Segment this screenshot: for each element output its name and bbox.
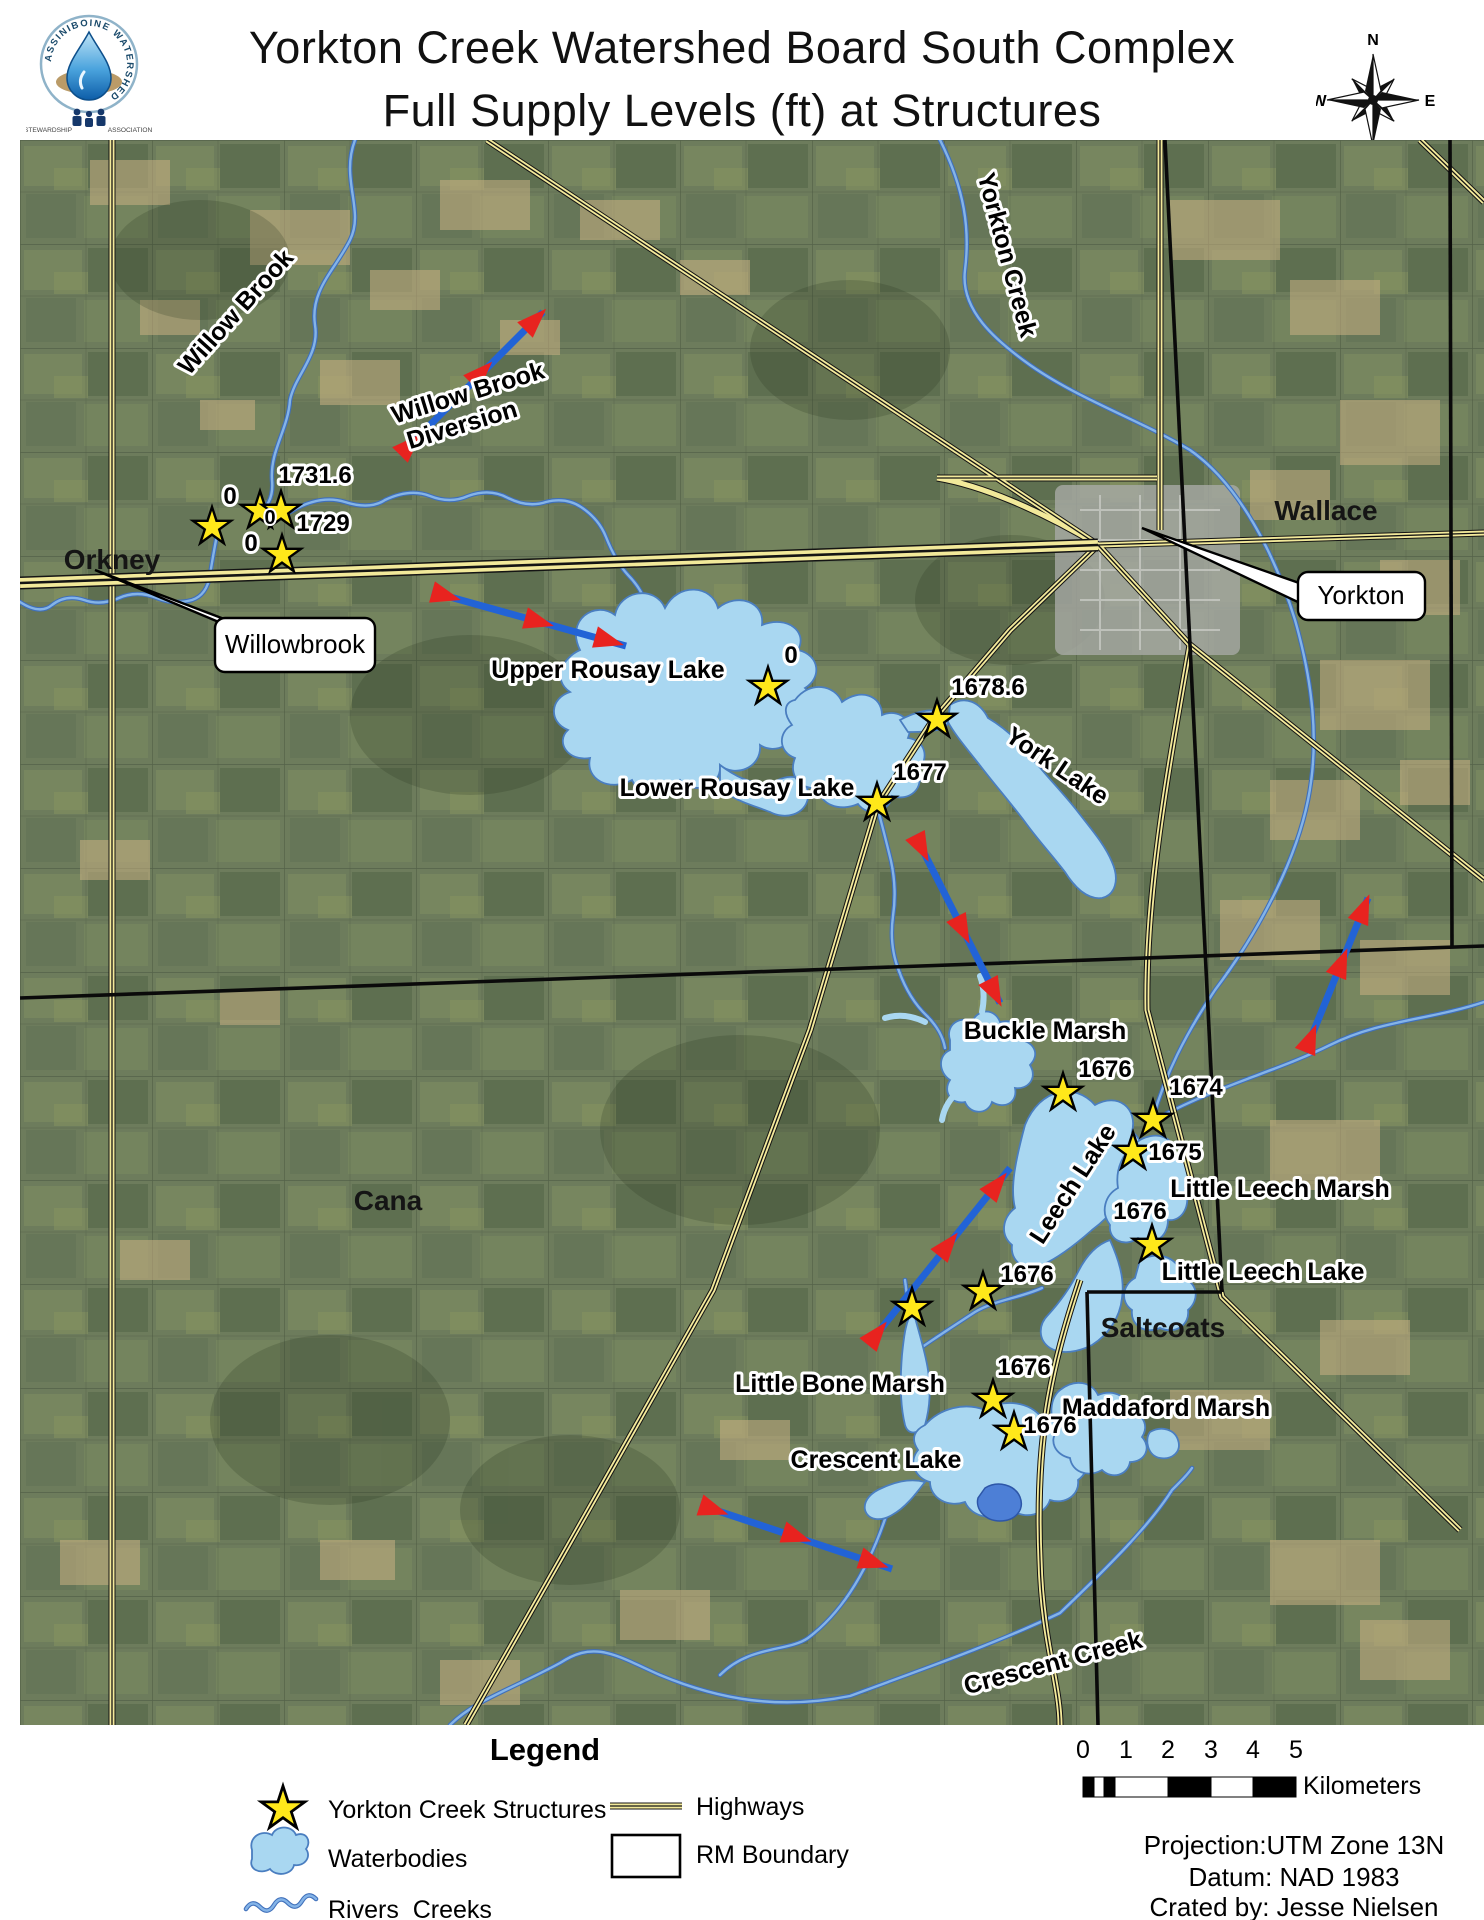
scale-tick: 1 xyxy=(1119,1736,1133,1764)
compass-n-label: N xyxy=(1367,32,1379,49)
organization-logo: ASSINIBOINE WATERSHED STEWARDSHIP ASSOCI… xyxy=(26,6,152,141)
legend-waterbody-icon xyxy=(251,1828,308,1874)
legend-item-highways: Highways xyxy=(696,1793,804,1821)
page-title-line1: Yorkton Creek Watershed Board South Comp… xyxy=(0,22,1484,74)
structure-value: 1676 xyxy=(997,1354,1050,1381)
label-maddaford-marsh: Maddaford Marsh xyxy=(1062,1394,1270,1422)
compass-w-label: W xyxy=(1316,93,1327,110)
scale-tick: 0 xyxy=(1076,1736,1090,1764)
scale-tick: 5 xyxy=(1289,1736,1303,1764)
label-wallace: Wallace xyxy=(1274,495,1377,526)
label-upper-rousay-lake: Upper Rousay Lake xyxy=(491,656,725,684)
scale-tick: 4 xyxy=(1246,1736,1260,1764)
logo-banner-right: ASSOCIATION xyxy=(108,127,152,134)
yorkton-city-area xyxy=(1055,485,1240,655)
structure-value: 0 xyxy=(244,530,257,557)
callout-willowbrook-label: Willowbrook xyxy=(225,629,366,659)
compass-rose: N E S W xyxy=(1316,12,1446,153)
structure-value: 1674 xyxy=(1169,1074,1223,1101)
structure-value: 1731.6 xyxy=(278,462,351,489)
label-little-leech-lake: Little Leech Lake xyxy=(1162,1258,1365,1286)
scale-bar: 0 1 2 3 4 5 Kilometers xyxy=(1076,1736,1421,1800)
header: Yorkton Creek Watershed Board South Comp… xyxy=(0,0,1484,140)
label-orkney: Orkney xyxy=(64,544,161,575)
credit-author: Crated by: Jesse Nielsen xyxy=(1149,1892,1438,1920)
logo-banner-left: STEWARDSHIP xyxy=(26,127,73,134)
dark-pond-water xyxy=(977,1484,1021,1521)
credit-datum: Datum: NAD 1983 xyxy=(1189,1862,1400,1892)
label-lower-rousay-lake: Lower Rousay Lake xyxy=(620,774,855,802)
label-buckle-marsh: Buckle Marsh xyxy=(964,1017,1127,1045)
legend-item-rivers: Rivers_Creeks xyxy=(328,1896,492,1920)
compass-e-label: E xyxy=(1425,93,1436,110)
legend-rm-boundary-icon xyxy=(612,1835,680,1877)
label-crescent-lake: Crescent Lake xyxy=(791,1446,962,1474)
map-document: Yorkton Creek Watershed Board South Comp… xyxy=(0,0,1484,1920)
label-saltcoats: Saltcoats xyxy=(1101,1312,1226,1343)
structure-value: 1676 xyxy=(1078,1056,1131,1083)
label-little-bone-marsh: Little Bone Marsh xyxy=(735,1370,945,1398)
label-cana: Cana xyxy=(354,1185,423,1216)
legend-title: Legend xyxy=(490,1732,600,1767)
page-title-line2: Full Supply Levels (ft) at Structures xyxy=(0,85,1484,137)
scale-unit: Kilometers xyxy=(1303,1772,1421,1800)
scale-tick: 2 xyxy=(1161,1736,1175,1764)
legend-item-structures: Yorkton Creek Structures xyxy=(328,1796,606,1824)
legend-item-rm-boundary: RM Boundary xyxy=(696,1841,849,1869)
north-arrow-icon xyxy=(1327,54,1419,146)
aerial-imagery xyxy=(20,140,1484,1725)
structure-value: 1675 xyxy=(1148,1139,1201,1166)
structure-value: 1678.6 xyxy=(951,674,1024,701)
structure-value: 1676 xyxy=(1113,1198,1166,1225)
scale-tick: 3 xyxy=(1204,1736,1218,1764)
credit-projection: Projection:UTM Zone 13N xyxy=(1144,1830,1445,1860)
structure-value: 1676 xyxy=(1000,1261,1053,1288)
structure-value: 0 xyxy=(223,483,236,510)
map-canvas: Willow Brook Willow Brook Diversion Uppe… xyxy=(20,140,1484,1725)
structure-value: 1729 xyxy=(296,510,349,537)
structure-value: 1677 xyxy=(893,759,946,786)
legend-area: Legend Yorkton Creek Structures Waterbod… xyxy=(0,1725,1484,1920)
structure-value: 1676 xyxy=(1023,1412,1076,1439)
callout-yorkton-label: Yorkton xyxy=(1317,580,1404,610)
maddaford-east-water xyxy=(1147,1429,1179,1459)
legend-star-icon xyxy=(261,1786,305,1828)
structure-value: 0 xyxy=(264,507,275,529)
structure-value: 0 xyxy=(784,642,797,669)
legend-item-waterbodies: Waterbodies xyxy=(328,1845,467,1873)
label-little-leech-marsh: Little Leech Marsh xyxy=(1170,1175,1390,1203)
people-icon xyxy=(73,109,106,127)
